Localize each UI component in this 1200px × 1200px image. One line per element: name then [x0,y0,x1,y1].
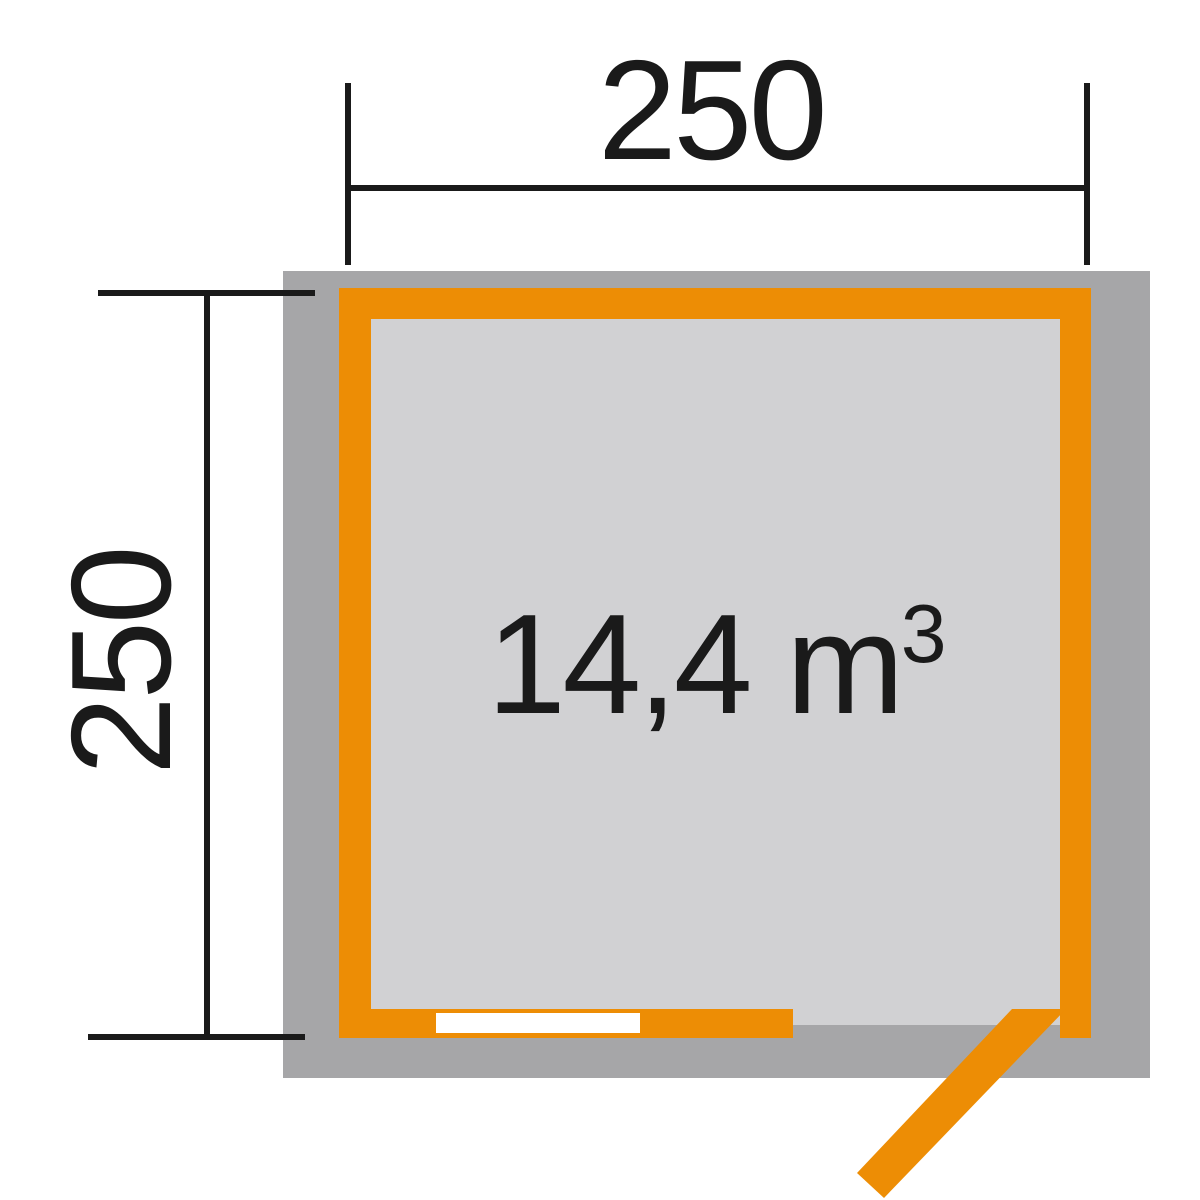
height-dimension-label: 250 [51,549,193,775]
height-dimension-tick-bottom [88,1034,305,1040]
width-dimension-tick-right [1084,83,1090,265]
width-dimension-label: 250 [598,40,824,182]
height-dimension-tick-top [98,290,315,296]
door-leaf [857,1009,1066,1198]
floor-plan-diagram: 250 250 14,4m3 [0,0,1200,1200]
width-dimension-tick-left [345,83,351,265]
volume-exponent: 3 [901,588,943,680]
volume-value: 14,4 [487,585,749,744]
volume-unit: m [786,585,901,744]
height-dimension-line [204,293,210,1037]
volume-label: 14,4m3 [487,594,943,736]
